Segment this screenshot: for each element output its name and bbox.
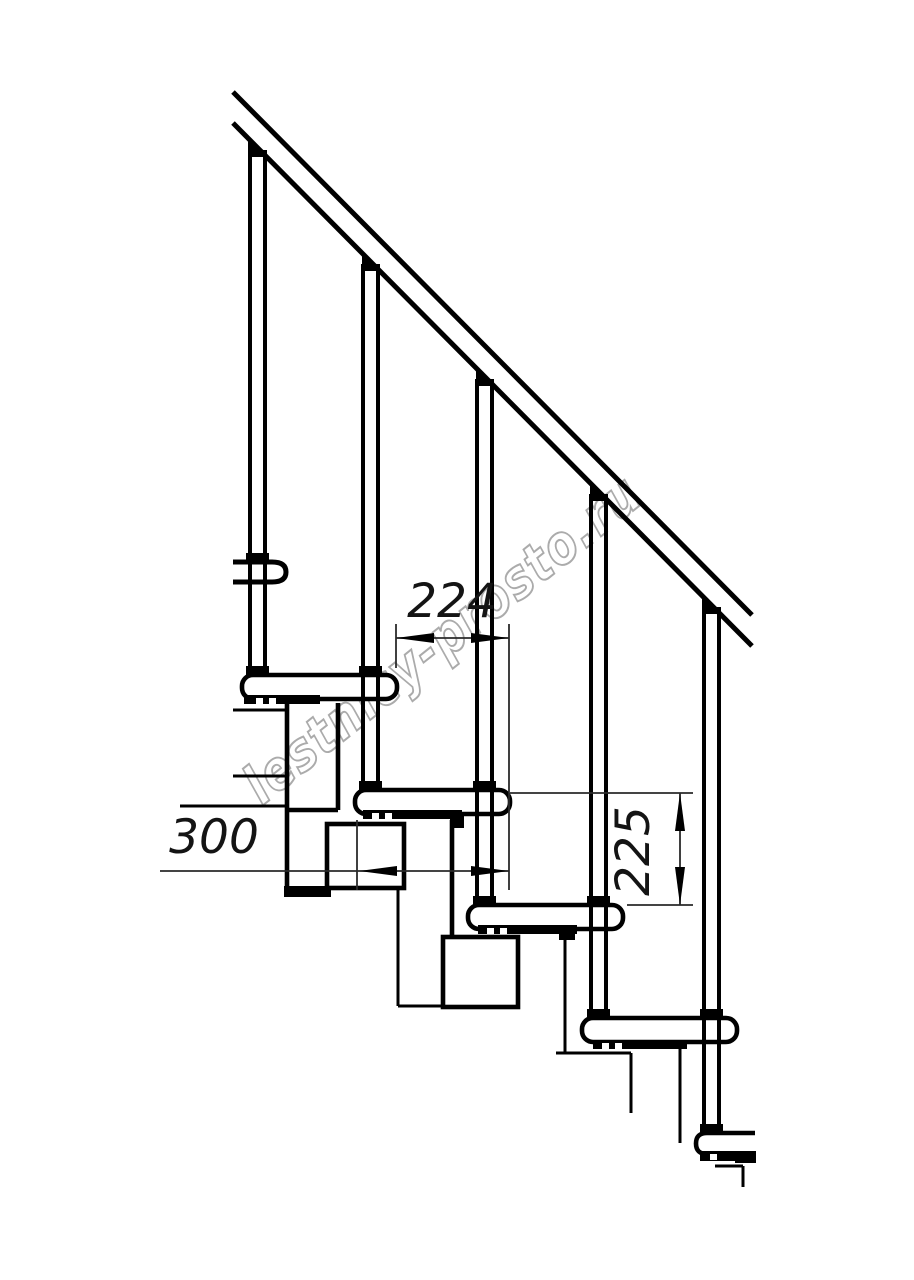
baluster-5 bbox=[700, 596, 723, 1133]
staircase-drawing: lestnicy-prosto.ru bbox=[0, 0, 914, 1280]
dimension-label-224: 224 bbox=[407, 574, 497, 629]
module-chain bbox=[284, 703, 743, 1187]
baluster-1 bbox=[246, 139, 269, 675]
dimension-rise-225: 225 bbox=[510, 793, 693, 905]
baluster-4 bbox=[587, 483, 610, 1018]
technical-drawing-canvas: lestnicy-prosto.ru bbox=[0, 0, 914, 1280]
dimension-label-300: 300 bbox=[169, 810, 259, 865]
tread-5-truncated bbox=[696, 1133, 755, 1154]
module-base-plate bbox=[284, 886, 331, 897]
module-box bbox=[443, 937, 518, 1007]
module-box bbox=[327, 824, 404, 888]
dimension-label-225: 225 bbox=[606, 806, 661, 896]
tread-4 bbox=[582, 1018, 737, 1042]
upper-tread-edge-bracket bbox=[233, 562, 286, 582]
